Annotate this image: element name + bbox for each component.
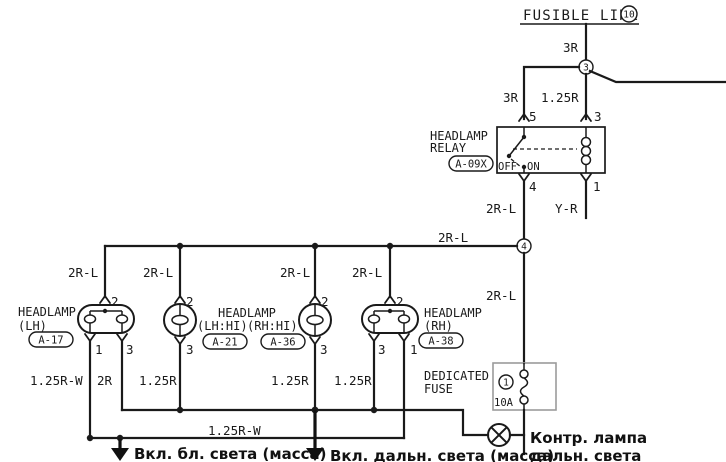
- lamp-pin-label: 3: [186, 342, 194, 357]
- wire-label-1-25r-relay: 1.25R: [541, 90, 579, 105]
- lamp-pin-label: 3: [126, 342, 134, 357]
- connector-a38-badge: A-38: [419, 333, 463, 348]
- junction-dot: [177, 407, 183, 413]
- wire-label-2r-l: 2R-L: [352, 265, 382, 280]
- wiring-diagram-svg: FUSIBLE LINK 10 3R 3 3R 1.25R 5 3 HEADLA…: [0, 0, 726, 462]
- fusible-link-label: FUSIBLE LINK 10: [520, 6, 639, 24]
- headlamp-rh-title: HEADLAMP: [424, 306, 482, 320]
- relay-coil-icon: [582, 127, 591, 173]
- wire-label-1-25r: 1.25R: [271, 373, 309, 388]
- wire-label-2r-l: 2R-L: [68, 265, 98, 280]
- pin-arrow-up-icon: [175, 296, 185, 303]
- wire-label-1-25r-w-bottom: 1.25R-W: [208, 423, 261, 438]
- wire-high-beam-ground-line: [122, 410, 488, 435]
- headlamp-hi-sub-rh: (RH:HI): [247, 319, 298, 333]
- wire-label-2r: 2R: [97, 373, 113, 388]
- relay-connector-badge: A-09X: [449, 156, 493, 171]
- wire-label-1-25r: 1.25R: [139, 373, 177, 388]
- headlamp-hi-lh-symbol: [164, 304, 196, 336]
- relay-switch-icon: [507, 127, 577, 173]
- high-beam-ground-label: Вкл. дальн. света (масса): [330, 447, 554, 462]
- relay-title-line2: RELAY: [430, 141, 467, 155]
- fusible-link-number: 10: [623, 10, 635, 21]
- wire-label-1-25r: 1.25R: [334, 373, 372, 388]
- fuse-title-line1: DEDICATED: [424, 369, 489, 383]
- indicator-lamp-label-line1: Контр. лампа: [530, 429, 647, 447]
- pin-arrow-up-icon: [100, 296, 110, 303]
- bulb-filament-icon: [85, 315, 96, 323]
- lamp-pin-label: 3: [320, 342, 328, 357]
- relay-pin-1-label: 1: [593, 179, 601, 194]
- headlamp-lh-symbol: [78, 305, 134, 333]
- fuse-number-badge: 1: [499, 375, 513, 389]
- low-beam-ground-label: Вкл. бл. света (масса): [134, 445, 327, 462]
- wire-label-2r-l-bus: 2R-L: [438, 230, 468, 245]
- relay-pin-4-label: 4: [529, 179, 537, 194]
- wire-label-3r-top: 3R: [563, 40, 579, 55]
- pin-arrow-up-icon: [310, 296, 320, 303]
- connector-a17-id: A-17: [38, 335, 63, 347]
- connector-a21-badge: A-21: [203, 334, 247, 349]
- headlamp-rh-symbol: [362, 305, 418, 333]
- ground-arrow-low-beam-icon: [111, 439, 129, 461]
- wire-label-y-r: Y-R: [555, 201, 578, 216]
- wire-label-2r-l: 2R-L: [143, 265, 173, 280]
- lamp-pin-2-label: 2: [396, 294, 404, 309]
- relay-pin-5-label: 5: [529, 109, 537, 124]
- junction-dot: [87, 435, 93, 441]
- pin-arrow-up-icon: [385, 296, 395, 303]
- headlamp-lh-title: HEADLAMP: [18, 305, 76, 319]
- lamp-pin-label: 1: [410, 342, 418, 357]
- connector-a36-id: A-36: [270, 337, 295, 349]
- wire-j3-branch-right: [590, 71, 726, 82]
- indicator-lamp-icon: [488, 424, 510, 446]
- connector-a17-badge: A-17: [29, 332, 73, 347]
- headlamp-lh-sub: (LH): [18, 319, 47, 333]
- fuse-element-icon: [520, 363, 528, 410]
- relay-on-label: ON: [527, 161, 540, 173]
- junction-dot: [371, 407, 377, 413]
- junction-4-badge: 4: [517, 239, 531, 253]
- headlamp-hi-title: HEADLAMP: [218, 306, 276, 320]
- bulb-filament-icon: [369, 315, 380, 323]
- connector-a36-badge: A-36: [261, 334, 305, 349]
- relay-off-label: OFF: [498, 161, 517, 173]
- bulb-filament-icon: [117, 315, 128, 323]
- headlamp-hi-sub-lh: (LH:HI): [197, 319, 248, 333]
- wire-label-2r-l: 2R-L: [280, 265, 310, 280]
- bulb-filament-icon: [172, 316, 188, 325]
- fuse-rating-label: 10A: [494, 397, 514, 409]
- junction-3-number: 3: [583, 63, 589, 74]
- lamp-pin-label: 3: [378, 342, 386, 357]
- junction-4-number: 4: [521, 242, 527, 253]
- wire-label-1-25r-w: 1.25R-W: [30, 373, 83, 388]
- connector-a21-id: A-21: [212, 337, 237, 349]
- bulb-filament-icon: [307, 316, 323, 325]
- bulb-filament-icon: [399, 315, 410, 323]
- wire-label-3r-left: 3R: [503, 90, 519, 105]
- connector-a38-id: A-38: [428, 336, 453, 348]
- fuse-number: 1: [503, 378, 509, 389]
- wire-label-2r-l-pin4: 2R-L: [486, 201, 516, 216]
- fuse-title-line2: FUSE: [424, 382, 453, 396]
- wire-label-2r-l-down: 2R-L: [486, 288, 516, 303]
- relay-pin-3-label: 3: [594, 109, 602, 124]
- wiring-diagram: FUSIBLE LINK 10 3R 3 3R 1.25R 5 3 HEADLA…: [0, 0, 726, 462]
- relay-connector-id: A-09X: [455, 159, 487, 171]
- headlamp-hi-rh-symbol: [299, 304, 331, 336]
- indicator-lamp-label-line2: дальн. света: [530, 447, 641, 462]
- headlamp-rh-sub: (RH): [424, 319, 453, 333]
- lamp-pin-2-label: 2: [111, 294, 119, 309]
- lamp-pin-label: 1: [95, 342, 103, 357]
